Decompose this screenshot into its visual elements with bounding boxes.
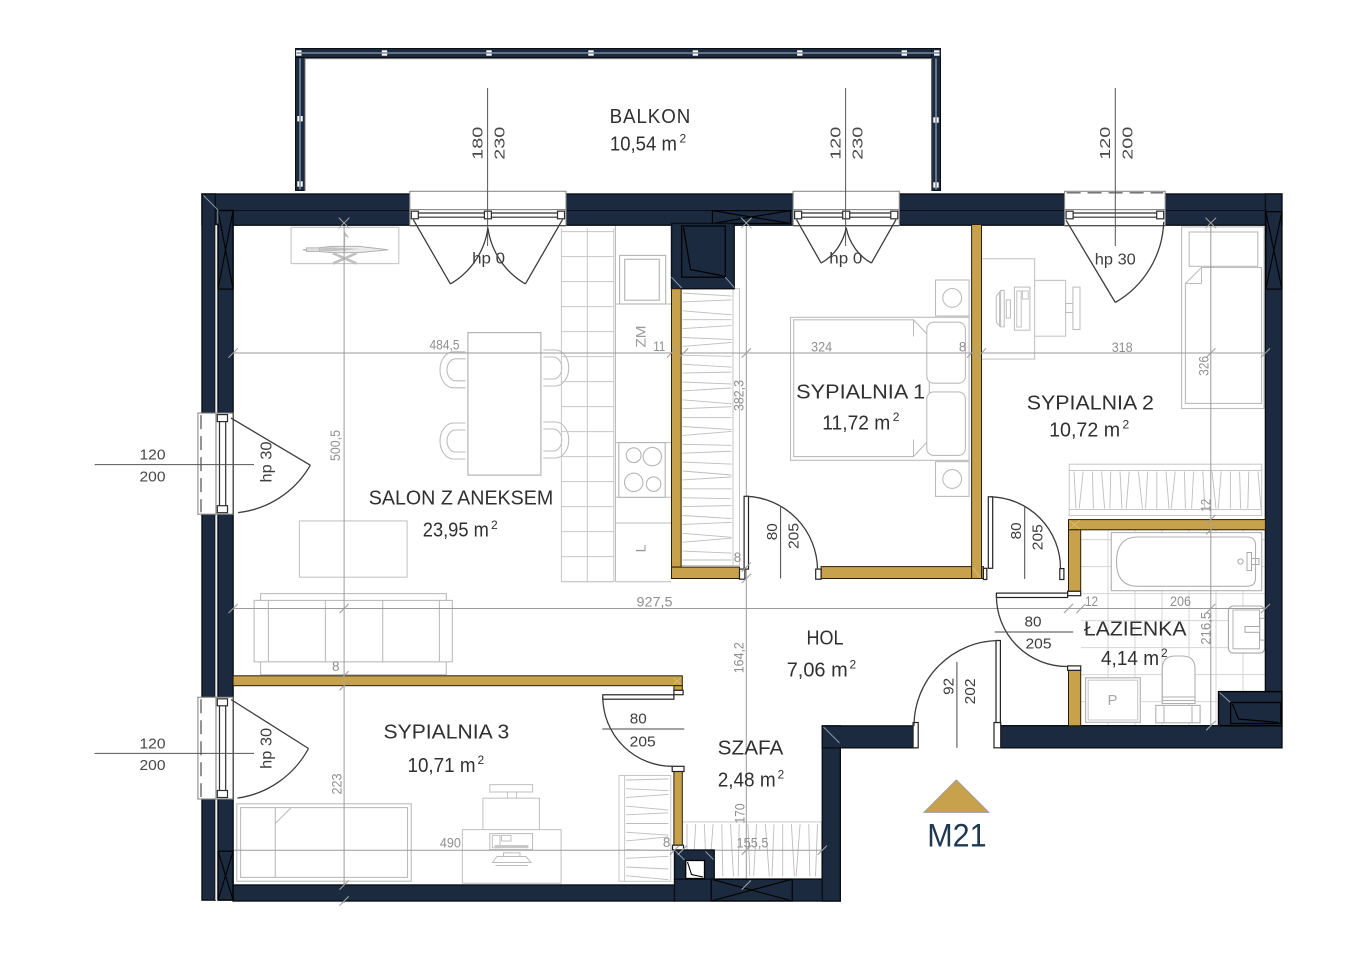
- svg-text:12: 12: [1085, 594, 1098, 609]
- svg-text:120: 120: [140, 448, 166, 464]
- svg-text:200: 200: [1120, 127, 1136, 160]
- svg-text:206: 206: [1170, 594, 1191, 609]
- svg-text:500,5: 500,5: [328, 430, 343, 461]
- svg-text:SYPIALNIA 3: SYPIALNIA 3: [384, 721, 510, 744]
- svg-text:SALON Z ANEKSEM: SALON Z ANEKSEM: [369, 487, 553, 510]
- svg-text:2,48 m: 2,48 m: [718, 769, 776, 792]
- svg-text:216,5: 216,5: [1199, 612, 1214, 645]
- svg-text:SYPIALNIA 1: SYPIALNIA 1: [796, 380, 925, 403]
- svg-text:10,72 m: 10,72 m: [1049, 419, 1120, 442]
- svg-text:230: 230: [851, 127, 867, 160]
- svg-text:324: 324: [811, 340, 832, 355]
- svg-text:223: 223: [330, 774, 345, 795]
- svg-text:2: 2: [893, 410, 900, 424]
- svg-text:170: 170: [733, 804, 748, 824]
- svg-text:490: 490: [440, 836, 461, 851]
- svg-text:318: 318: [1112, 340, 1133, 355]
- svg-text:120: 120: [1098, 127, 1114, 160]
- svg-text:2: 2: [850, 658, 857, 672]
- svg-text:927,5: 927,5: [637, 594, 673, 609]
- svg-text:4,14 m: 4,14 m: [1101, 647, 1159, 670]
- svg-text:484,5: 484,5: [430, 337, 460, 352]
- svg-text:SYPIALNIA 2: SYPIALNIA 2: [1027, 392, 1154, 415]
- svg-text:hp 30: hp 30: [1095, 252, 1136, 269]
- svg-text:205: 205: [1026, 636, 1052, 653]
- svg-text:326: 326: [1197, 356, 1212, 376]
- svg-text:hp 30: hp 30: [259, 441, 276, 482]
- svg-text:8: 8: [663, 835, 671, 850]
- svg-text:11: 11: [653, 339, 665, 354]
- svg-text:8: 8: [734, 550, 742, 565]
- svg-text:BALKON: BALKON: [610, 105, 692, 128]
- svg-text:200: 200: [140, 469, 166, 485]
- svg-text:8: 8: [959, 340, 967, 355]
- svg-text:382,3: 382,3: [732, 380, 747, 411]
- svg-text:2: 2: [778, 768, 785, 782]
- svg-text:202: 202: [962, 678, 979, 704]
- svg-text:ZM: ZM: [633, 326, 649, 348]
- svg-text:80: 80: [764, 523, 781, 540]
- svg-text:164,2: 164,2: [732, 642, 747, 673]
- svg-text:2: 2: [491, 518, 498, 532]
- svg-text:155,5: 155,5: [737, 836, 769, 851]
- svg-text:23,95 m: 23,95 m: [423, 519, 489, 542]
- svg-text:hp 30: hp 30: [259, 728, 276, 769]
- svg-text:hp 0: hp 0: [829, 251, 862, 268]
- svg-text:2: 2: [1161, 646, 1168, 660]
- svg-text:ŁAZIENKA: ŁAZIENKA: [1084, 618, 1187, 641]
- svg-text:80: 80: [1008, 522, 1025, 539]
- svg-text:230: 230: [493, 127, 509, 160]
- svg-text:2: 2: [478, 753, 485, 767]
- svg-text:10,71 m: 10,71 m: [408, 754, 476, 777]
- svg-text:80: 80: [630, 711, 647, 728]
- svg-text:12: 12: [1199, 499, 1214, 512]
- svg-text:2: 2: [680, 132, 687, 146]
- svg-text:P: P: [1107, 692, 1117, 709]
- svg-text:10,54 m: 10,54 m: [610, 133, 677, 156]
- svg-text:180: 180: [470, 127, 486, 160]
- svg-text:200: 200: [140, 758, 166, 774]
- svg-text:7,06 m: 7,06 m: [787, 659, 848, 682]
- svg-text:SZAFA: SZAFA: [718, 737, 784, 760]
- svg-text:120: 120: [828, 127, 844, 160]
- svg-text:2: 2: [1123, 418, 1130, 432]
- svg-text:HOL: HOL: [807, 627, 844, 650]
- svg-text:120: 120: [140, 736, 166, 752]
- svg-text:205: 205: [630, 734, 656, 751]
- svg-text:205: 205: [1030, 524, 1047, 550]
- svg-text:80: 80: [1025, 614, 1042, 631]
- svg-text:205: 205: [786, 523, 803, 549]
- svg-text:L: L: [633, 544, 649, 552]
- svg-text:8: 8: [332, 659, 340, 674]
- svg-text:hp 0: hp 0: [472, 251, 505, 268]
- svg-text:11,72 m: 11,72 m: [822, 412, 890, 435]
- svg-text:92: 92: [940, 678, 957, 695]
- svg-text:M21: M21: [927, 818, 986, 854]
